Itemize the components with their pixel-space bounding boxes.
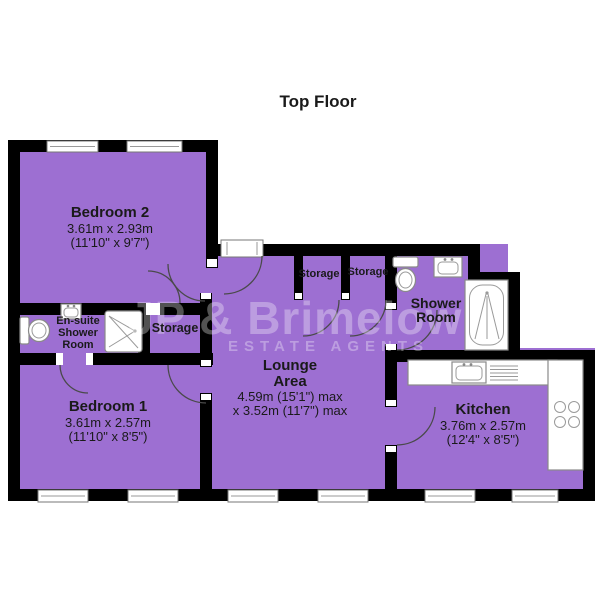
lounge-label-line1: Lounge: [263, 358, 317, 374]
lounge-label-line2: Area: [273, 374, 306, 390]
ensuite-shower-icon: [105, 311, 142, 352]
toilet-icon: [393, 257, 418, 292]
ensuite-label-line3: Room: [62, 340, 93, 352]
window: [38, 490, 88, 502]
shower-cubicle-icon: [465, 280, 508, 350]
storage-closet-1-label: Storage: [299, 269, 340, 281]
kitchen-sink-icon: [452, 362, 486, 383]
window: [47, 141, 98, 152]
window: [512, 490, 558, 502]
window: [127, 141, 182, 152]
ensuite-label-line1: En-suite: [56, 316, 99, 328]
entrance-door: [221, 240, 263, 257]
sink-icon: [434, 257, 462, 277]
kitchen-imperial: (12'4" x 8'5"): [447, 433, 520, 447]
lounge-imperial: x 3.52m (11'7") max: [233, 404, 348, 418]
bedroom-1-metric: 3.61m x 2.57m: [65, 416, 151, 430]
window: [425, 490, 475, 502]
bedroom-2-label: Bedroom 2: [71, 205, 149, 221]
bedroom-1-imperial: (11'10" x 8'5"): [69, 430, 148, 444]
page-title: Top Floor: [279, 93, 356, 111]
bedroom-1-label: Bedroom 1: [69, 399, 147, 415]
kitchen-metric: 3.76m x 2.57m: [440, 419, 526, 433]
storage-hall-label: Storage: [152, 322, 199, 335]
storage-closet-2-label: Storage: [348, 267, 389, 279]
floor-plan-page: JP & Brimelow ESTATE AGENTS Top Floor Be…: [0, 0, 600, 600]
kitchen-label: Kitchen: [455, 402, 510, 418]
bedroom-2-metric: 3.61m x 2.93m: [67, 222, 153, 236]
bedroom-2-imperial: (11'10" x 9'7"): [71, 236, 150, 250]
window: [128, 490, 178, 502]
shower-room-label-line2: Room: [416, 310, 456, 325]
floor-plan-drawing: [0, 0, 600, 600]
ensuite-label-line2: Shower: [58, 328, 98, 340]
lounge-metric: 4.59m (15'1") max: [237, 390, 342, 404]
window: [318, 490, 368, 502]
window: [228, 490, 278, 502]
ensuite-toilet-icon: [20, 317, 50, 344]
